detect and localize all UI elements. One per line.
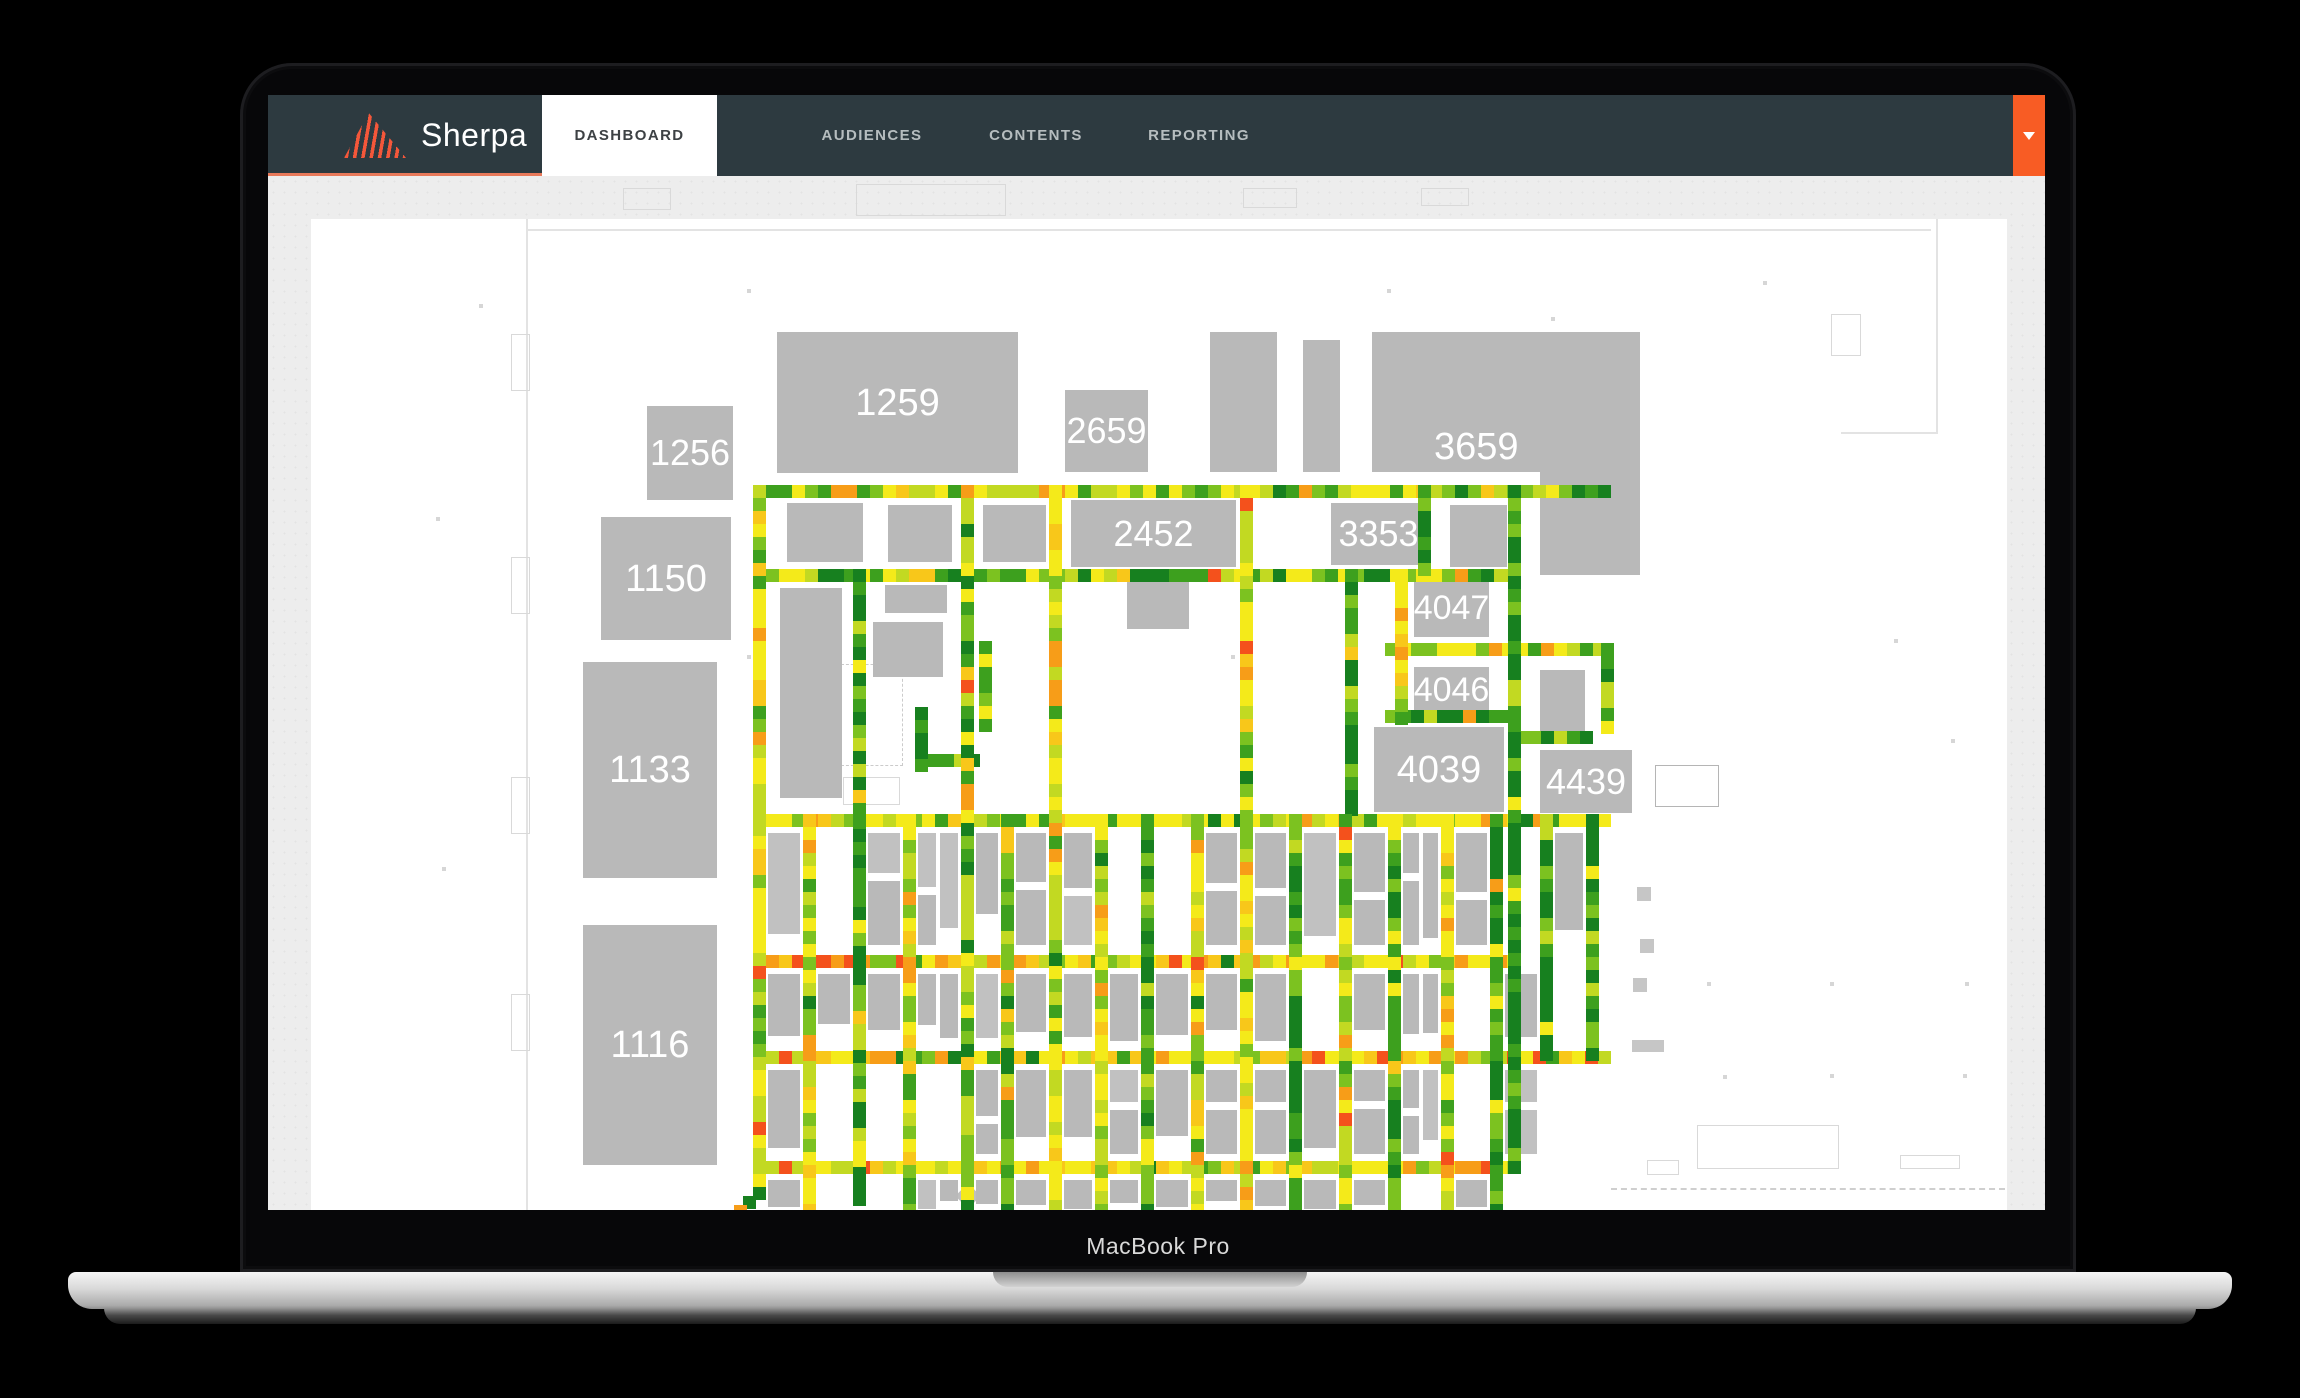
heat-tile: [1289, 1126, 1302, 1139]
heat-tile: [1388, 918, 1401, 931]
heat-tile: [1289, 1191, 1302, 1204]
booth-4047[interactable]: 4047: [1414, 578, 1489, 637]
heat-tile: [1078, 1161, 1091, 1174]
heat-tile: [1468, 1161, 1481, 1174]
heat-tile: [1260, 814, 1273, 827]
heat-tile: [1388, 983, 1401, 996]
booth-2659[interactable]: 2659: [1065, 390, 1148, 472]
heat-tile: [1095, 1204, 1108, 1211]
heat-tile: [1049, 706, 1062, 719]
heat-tile: [1141, 1074, 1154, 1087]
heat-tile: [1395, 569, 1408, 582]
heat-tile: [1339, 1152, 1352, 1165]
heat-tile: [1388, 892, 1401, 905]
heat-tile: [1455, 814, 1468, 827]
heat-tile: [1240, 901, 1253, 914]
heat-tile: [1156, 955, 1169, 968]
plan-outline: [1697, 1125, 1839, 1169]
heat-tile: [915, 707, 928, 720]
plan-outline: [526, 229, 1931, 231]
booth-small: [1156, 974, 1188, 1035]
heat-tile: [1289, 1152, 1302, 1165]
heat-tile: [1441, 931, 1454, 944]
heat-tile: [1508, 1057, 1521, 1070]
heat-tile: [1240, 862, 1253, 875]
heat-tile: [1388, 1165, 1401, 1178]
heat-tile: [1289, 853, 1302, 866]
heat-tile: [1065, 485, 1078, 498]
heat-tile: [1049, 849, 1062, 862]
heat-tile: [1169, 485, 1182, 498]
heat-tile: [1339, 1126, 1352, 1139]
heat-tile: [1416, 955, 1429, 968]
heat-tile: [1559, 814, 1572, 827]
heat-tile: [1289, 1074, 1302, 1087]
tab-audiences[interactable]: AUDIENCES: [807, 95, 937, 176]
heat-tile: [803, 1113, 816, 1126]
heat-tile: [961, 628, 974, 641]
vent-outline: [1243, 188, 1297, 208]
heat-tile: [1026, 485, 1039, 498]
heat-tile: [1490, 1191, 1503, 1204]
booth-small: [1403, 881, 1419, 945]
heat-tile: [1141, 853, 1154, 866]
heat-tile: [753, 602, 766, 615]
heat-tile: [1339, 1204, 1352, 1211]
heat-tile: [1240, 1161, 1253, 1174]
heat-tile: [1049, 1161, 1062, 1174]
heat-tile: [1508, 1005, 1521, 1018]
vent-outline: [1421, 188, 1469, 206]
heat-tile: [1559, 1051, 1572, 1064]
heat-tile: [1095, 1061, 1108, 1074]
heat-tile: [979, 680, 992, 693]
heat-tile: [1490, 1126, 1503, 1139]
heat-tile: [1441, 1152, 1454, 1165]
booth-3659[interactable]: 3659: [1372, 332, 1640, 472]
booth-small: [1354, 1109, 1385, 1154]
heat-tile: [1191, 1074, 1204, 1087]
booth-4439[interactable]: 4439: [1540, 750, 1632, 813]
heat-tile: [1169, 1051, 1182, 1064]
heat-tile: [974, 485, 987, 498]
heat-tile: [766, 955, 779, 968]
heat-tile: [1468, 1051, 1481, 1064]
heat-tile: [1580, 731, 1593, 744]
heat-tile: [961, 797, 974, 810]
heat-tile: [1260, 569, 1273, 582]
heat-tile: [915, 746, 928, 759]
heat-tile: [961, 1148, 974, 1161]
heat-tile: [753, 524, 766, 537]
heat-tile: [753, 1044, 766, 1057]
heat-tile: [1141, 944, 1154, 957]
heat-tile: [753, 485, 766, 498]
heat-tile: [1191, 1100, 1204, 1113]
heat-tile: [961, 667, 974, 680]
heat-tile: [922, 1161, 935, 1174]
heat-tile: [1586, 1035, 1599, 1048]
heat-tile: [1095, 1100, 1108, 1113]
heat-tile: [935, 485, 948, 498]
heat-tile: [853, 1141, 866, 1154]
heat-tile: [1191, 853, 1204, 866]
heat-tile: [1540, 1048, 1553, 1061]
booth-1116[interactable]: 1116: [583, 925, 717, 1165]
heat-tile: [1141, 1126, 1154, 1139]
heat-tile: [1528, 731, 1541, 744]
booth-small: [1206, 1110, 1237, 1154]
heat-tile: [803, 1035, 816, 1048]
heat-tile: [1000, 485, 1013, 498]
heat-tile: [853, 790, 866, 803]
heat-tile: [1339, 996, 1352, 1009]
heat-tile: [753, 1070, 766, 1083]
heat-tile: [903, 905, 916, 918]
heat-tile: [870, 955, 883, 968]
heat-tile: [1240, 914, 1253, 927]
heat-tile: [1388, 866, 1401, 879]
heat-tile: [1143, 569, 1156, 582]
heat-tile: [961, 914, 974, 927]
heat-tile: [903, 1074, 916, 1087]
heat-tile: [1208, 955, 1221, 968]
heat-tile: [1508, 693, 1521, 706]
heat-tile: [948, 955, 961, 968]
heat-tile: [1540, 840, 1553, 853]
heat-tile: [1240, 485, 1253, 498]
heat-tile: [779, 1161, 792, 1174]
heat-tile: [803, 1178, 816, 1191]
heat-tile: [1520, 1051, 1533, 1064]
heat-tile: [803, 1061, 816, 1074]
heat-tile: [961, 537, 974, 550]
heat-tile: [1221, 569, 1234, 582]
heat-tile: [844, 485, 857, 498]
heat-tile: [1289, 840, 1302, 853]
heat-tile: [1078, 955, 1091, 968]
heat-tile: [909, 569, 922, 582]
heat-tile: [1508, 940, 1521, 953]
heat-tile: [1141, 814, 1154, 827]
heat-tile: [1240, 810, 1253, 823]
account-menu-button[interactable]: [2013, 95, 2045, 176]
heat-tile: [1490, 918, 1503, 931]
heat-tile: [1049, 589, 1062, 602]
heat-tile: [1191, 1126, 1204, 1139]
heat-tile: [922, 1051, 935, 1064]
heat-tile: [1345, 777, 1358, 790]
heat-tile: [1490, 1178, 1503, 1191]
heat-tile: [961, 680, 974, 693]
heat-tile: [1141, 840, 1154, 853]
heat-tile: [1240, 784, 1253, 797]
heat-tile: [903, 1178, 916, 1191]
heat-tile: [1026, 569, 1039, 582]
heat-tile: [961, 1109, 974, 1122]
heat-tile: [1388, 931, 1401, 944]
heat-tile: [1240, 1200, 1253, 1211]
heat-tile: [1049, 1187, 1062, 1200]
heat-tile: [753, 693, 766, 706]
heat-tile: [1117, 1051, 1130, 1064]
heat-tile: [1191, 1113, 1204, 1126]
heat-tile: [1143, 485, 1156, 498]
heat-tile: [1540, 918, 1553, 931]
booth-4039[interactable]: 4039: [1374, 727, 1504, 812]
heat-tile: [961, 1057, 974, 1070]
heat-tile: [961, 875, 974, 888]
heat-tile: [1364, 814, 1377, 827]
heat-tile: [1490, 814, 1503, 827]
heat-tile: [1049, 524, 1062, 537]
heat-tile: [1095, 1191, 1108, 1204]
heat-tile: [1508, 953, 1521, 966]
heat-tile: [1289, 827, 1302, 840]
heat-tile: [1049, 784, 1062, 797]
heat-tile: [753, 771, 766, 784]
heat-tile: [1141, 1100, 1154, 1113]
tab-dashboard[interactable]: DASHBOARD: [542, 95, 717, 176]
heat-tile: [1049, 602, 1062, 615]
heat-tile: [1191, 905, 1204, 918]
heat-tile: [831, 569, 844, 582]
heat-tile: [1441, 1178, 1454, 1191]
heat-tile: [1490, 970, 1503, 983]
heat-tile: [1540, 892, 1553, 905]
heat-tile: [1208, 485, 1221, 498]
heat-tile: [853, 569, 866, 582]
heat-tile: [1240, 680, 1253, 693]
heat-tile: [961, 758, 974, 771]
heat-tile: [1508, 719, 1521, 732]
heat-tile: [753, 563, 766, 576]
booth-block: [780, 588, 842, 798]
heat-tile: [1586, 1022, 1599, 1035]
heat-tile: [1130, 485, 1143, 498]
heat-tile: [1508, 836, 1521, 849]
heat-tile: [1141, 1009, 1154, 1022]
heat-tile: [853, 1128, 866, 1141]
heat-tile: [779, 485, 792, 498]
heat-tile: [1240, 953, 1253, 966]
heat-tile: [1441, 957, 1454, 970]
heat-tile: [803, 931, 816, 944]
heat-tile: [1508, 1148, 1521, 1161]
booth-small: [868, 833, 900, 873]
heat-tile: [1554, 731, 1567, 744]
heat-tile: [766, 569, 779, 582]
heat-tile: [961, 563, 974, 576]
heat-tile: [1240, 602, 1253, 615]
heat-tile: [753, 979, 766, 992]
booth-1133[interactable]: 1133: [583, 662, 717, 878]
heat-tile: [979, 706, 992, 719]
heat-tile: [853, 1024, 866, 1037]
heat-tile: [1141, 1113, 1154, 1126]
heat-tile: [753, 1161, 766, 1174]
heat-tile: [1490, 1100, 1503, 1113]
tab-contents[interactable]: CONTENTS: [971, 95, 1101, 176]
heat-tile: [803, 1126, 816, 1139]
heat-tile: [1104, 485, 1117, 498]
heat-tile: [1049, 1122, 1062, 1135]
heat-tile: [1339, 1191, 1352, 1204]
booth-small: [1156, 1070, 1188, 1136]
heat-tile: [1441, 1087, 1454, 1100]
booth-small: [1354, 1070, 1385, 1101]
booth-2452[interactable]: 2452: [1071, 500, 1236, 567]
heat-tile: [883, 1161, 896, 1174]
heat-tile: [1182, 485, 1195, 498]
booth-1259[interactable]: 1259: [777, 332, 1018, 473]
heat-tile: [1141, 1035, 1154, 1048]
heat-tile: [1240, 1174, 1253, 1187]
heat-tile: [853, 868, 866, 881]
heat-tile: [1339, 970, 1352, 983]
plan-outline: [1637, 887, 1651, 901]
heat-tile: [853, 855, 866, 868]
heat-tile: [1441, 1035, 1454, 1048]
heat-tile: [1141, 1061, 1154, 1074]
heat-tile: [1585, 485, 1598, 498]
heat-tile: [1095, 970, 1108, 983]
heat-tile: [1117, 955, 1130, 968]
plan-dot: [747, 289, 751, 293]
heat-tile: [1481, 485, 1494, 498]
booth-3353[interactable]: 3353: [1331, 503, 1426, 565]
heat-tile: [1508, 979, 1521, 992]
heat-tile: [1388, 1139, 1401, 1152]
heat-tile: [961, 862, 974, 875]
heat-tile: [1001, 970, 1014, 983]
tab-reporting[interactable]: REPORTING: [1134, 95, 1264, 176]
heat-tile: [753, 992, 766, 1005]
heat-tile: [1240, 563, 1253, 576]
heat-tile: [1508, 771, 1521, 784]
heat-tile: [1001, 1178, 1014, 1191]
booth-small: [1206, 974, 1237, 1030]
heat-tile: [1001, 1022, 1014, 1035]
heat-tile: [1508, 680, 1521, 693]
booth-small: [1206, 1070, 1237, 1102]
heat-tile: [1528, 643, 1541, 656]
heat-tile: [1345, 673, 1358, 686]
heat-tile: [1508, 758, 1521, 771]
heat-tile: [1289, 1165, 1302, 1178]
booth-label: 4046: [1414, 673, 1490, 707]
booth-4046[interactable]: 4046: [1414, 667, 1489, 713]
heat-tile: [935, 814, 948, 827]
heat-tile: [1441, 1100, 1454, 1113]
heat-tile: [1490, 957, 1503, 970]
heat-tile: [853, 920, 866, 933]
heat-tile: [1490, 905, 1503, 918]
heat-tile: [1001, 866, 1014, 879]
heat-tile: [1095, 1009, 1108, 1022]
heat-tile: [1540, 931, 1553, 944]
heat-tile: [1221, 814, 1234, 827]
booth-1256[interactable]: 1256: [647, 406, 733, 500]
heat-tile: [1416, 1051, 1429, 1064]
heat-tile: [753, 1135, 766, 1148]
booth-block: [1303, 340, 1340, 472]
heat-tile: [803, 840, 816, 853]
heat-tile: [1049, 1005, 1062, 1018]
heat-tile: [1221, 485, 1234, 498]
heat-tile: [1388, 1087, 1401, 1100]
plan-dot: [436, 517, 440, 521]
heat-tile: [753, 719, 766, 732]
heat-tile: [1489, 643, 1502, 656]
booth-small: [918, 833, 936, 887]
booth-small: [1064, 896, 1092, 945]
booth-1150[interactable]: 1150: [601, 517, 731, 640]
heat-tile: [753, 641, 766, 654]
heat-tile: [1339, 944, 1352, 957]
heat-tile: [803, 1022, 816, 1035]
heat-tile: [1541, 643, 1554, 656]
heat-tile: [1442, 485, 1455, 498]
heat-tile: [1601, 682, 1614, 695]
plan-outline: [1841, 432, 1938, 434]
heat-tile: [803, 1191, 816, 1204]
heat-tile: [1601, 656, 1614, 669]
booth-label: 4047: [1414, 591, 1490, 625]
heat-tile: [1441, 1126, 1454, 1139]
heat-tile: [1312, 1051, 1325, 1064]
heat-tile: [909, 485, 922, 498]
heat-tile: [853, 595, 866, 608]
heat-tile: [979, 719, 992, 732]
heat-tile: [1388, 970, 1401, 983]
heat-tile: [1049, 654, 1062, 667]
heat-tile: [1240, 654, 1253, 667]
heat-tile: [1078, 569, 1091, 582]
booth-small: [1110, 1070, 1138, 1102]
heat-tile: [1490, 944, 1503, 957]
heat-tile: [1339, 957, 1352, 970]
heat-tile: [961, 992, 974, 1005]
heat-tile: [853, 959, 866, 972]
plan-dot: [1830, 982, 1834, 986]
heat-tile: [1490, 853, 1503, 866]
heat-tile: [1049, 823, 1062, 836]
heat-tile: [1388, 1113, 1401, 1126]
heat-tile: [1240, 1148, 1253, 1161]
heat-tile: [974, 814, 987, 827]
booth-small: [1555, 833, 1583, 930]
heat-tile: [1572, 814, 1585, 827]
heat-tile: [1049, 992, 1062, 1005]
heat-tile: [1468, 955, 1481, 968]
heat-tile: [1289, 957, 1302, 970]
plan-outline: [1640, 939, 1654, 953]
heat-tile: [1508, 511, 1521, 524]
booth-small: [1016, 1180, 1046, 1205]
heat-tile: [948, 485, 961, 498]
heat-tile: [853, 582, 866, 595]
heat-tile: [974, 1051, 987, 1064]
heat-tile: [1117, 814, 1130, 827]
heat-tile: [1441, 1009, 1454, 1022]
heat-tile: [961, 1070, 974, 1083]
heat-tile: [1312, 485, 1325, 498]
plan-outline: [511, 994, 530, 1051]
heat-tile: [1049, 576, 1062, 589]
heat-tile: [1508, 589, 1521, 602]
macbook-lid-notch: [993, 1272, 1307, 1287]
